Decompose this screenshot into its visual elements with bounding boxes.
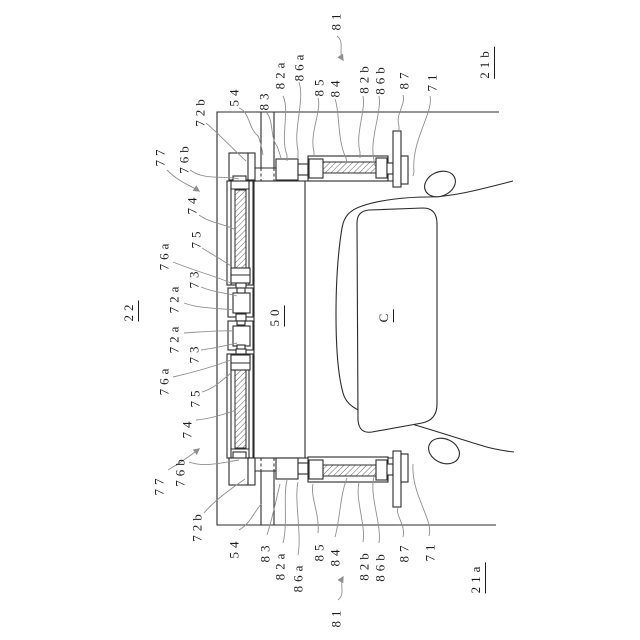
cylinder-end-block-top	[309, 159, 323, 178]
leader-82b-bottom	[358, 482, 363, 542]
actuator-top	[276, 131, 408, 187]
leader-76a-bottom	[173, 360, 231, 377]
leader-82a-bottom	[283, 480, 287, 543]
figure-line-art	[0, 0, 640, 640]
coupler-middle	[236, 314, 246, 321]
rod-cap-86b-bottom	[376, 460, 387, 480]
side-mirror-bottom	[425, 434, 464, 469]
rod-stub-top	[387, 163, 393, 174]
contact-pad-71-top	[401, 156, 408, 184]
carrier-plate-50	[254, 181, 305, 458]
leader-85-top	[313, 98, 319, 157]
pressing-plate-87-top	[393, 131, 401, 187]
leader-arrow-81-top	[337, 36, 343, 60]
screw-rod-74-bottom	[235, 368, 246, 448]
leader-86a-top	[297, 82, 301, 159]
cylinder-end-block-bottom	[309, 460, 323, 479]
vertical-screw-top	[227, 153, 255, 289]
rod-stub-bottom	[387, 464, 393, 475]
vehicle-outline	[336, 167, 514, 469]
contact-pad-71-bottom	[401, 454, 408, 482]
leader-72a-bottom	[184, 331, 234, 333]
gearbox-lower	[228, 321, 253, 350]
leader-86b-bottom	[373, 477, 380, 543]
leader-arrow-81-bottom	[338, 577, 343, 600]
coupling-top	[298, 164, 308, 175]
leader-arrow-77-top	[167, 170, 199, 191]
gearbox-upper	[228, 288, 253, 317]
leader-85-bottom	[312, 484, 318, 533]
screw-rod-84-bottom	[323, 465, 376, 476]
windshield	[357, 208, 437, 432]
support-column-top	[261, 112, 274, 181]
side-mirror-top	[421, 167, 460, 202]
leader-84-bottom	[335, 478, 347, 537]
screw-rod-84-top	[323, 162, 376, 173]
screw-rod-74-top	[235, 190, 246, 270]
leader-72b-top	[206, 123, 246, 161]
leader-76a-top	[173, 262, 231, 283]
coupling-bottom	[298, 463, 308, 474]
leader-87-bottom	[397, 508, 403, 537]
leader-82a-top	[283, 96, 287, 161]
support-column-bottom	[261, 458, 274, 525]
leader-71-top	[413, 96, 430, 176]
leader-arrow-77-bottom	[168, 449, 199, 470]
vertical-screw-bottom	[227, 349, 255, 485]
leader-82b-top	[359, 96, 364, 158]
leader-84-top	[335, 99, 347, 163]
motor-block-82a-bottom	[276, 458, 298, 479]
motor-block-82a-top	[276, 159, 298, 180]
leader-54-top	[239, 108, 263, 155]
rod-cap-86b-top	[376, 158, 387, 178]
patent-figure: 7776b72b548382a86a85848182b86b877121b227…	[0, 0, 640, 640]
pressing-plate-87-bottom	[393, 451, 401, 507]
leader-54-bottom	[239, 503, 262, 530]
leader-72a-top	[184, 303, 234, 310]
leader-86a-bottom	[297, 482, 299, 555]
